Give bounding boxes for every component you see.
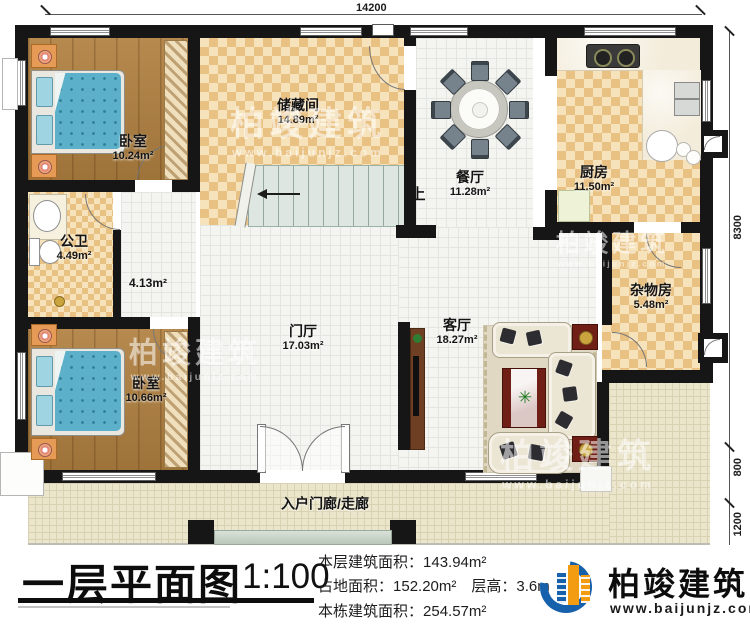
fridge — [558, 190, 590, 222]
right-dimension-label-1200: 1200 — [732, 512, 744, 536]
room-area: 11.28m² — [450, 186, 490, 199]
bathroom-sink — [33, 200, 61, 232]
room-label-foyer: 门厅 17.03m² — [283, 323, 324, 353]
porch-step — [214, 530, 392, 545]
sofa-cushion — [555, 359, 573, 377]
table-plant: ✳ — [516, 389, 534, 407]
title-block: 一层平面图 1:100 本层建筑面积：143.94m² 占地面积：152.20m… — [0, 545, 750, 633]
gas-stove — [586, 44, 640, 68]
room-area: 10.66m² — [126, 392, 167, 405]
window — [584, 27, 676, 36]
table-medallion — [579, 331, 593, 345]
wall — [113, 230, 121, 317]
sofa-cushion — [499, 441, 518, 460]
window — [300, 27, 362, 36]
room-label-bedroom1: 卧室 10.24m² — [113, 133, 154, 163]
logo-swoosh — [530, 551, 602, 623]
room-label-kitchen: 厨房 11.50m² — [574, 164, 614, 194]
wall — [545, 38, 557, 76]
brand-name: 柏竣建筑 — [608, 559, 748, 605]
vent-box — [372, 24, 394, 36]
room-label-storage: 储藏间 14.89m² — [277, 97, 319, 127]
room-name: 储藏间 — [277, 97, 319, 114]
burner — [594, 49, 612, 67]
round-basin — [646, 130, 678, 162]
area-stats: 本层建筑面积：143.94m² 占地面积：152.20m² 层高：3.6m 本栋… — [318, 551, 550, 624]
room-area: 11.50m² — [574, 181, 614, 194]
brand-website: www.baijunjz.com — [610, 600, 750, 616]
bed — [31, 348, 125, 436]
room-label-living: 客厅 18.27m² — [437, 317, 478, 347]
bed-sheet-fold — [55, 73, 81, 149]
small-bowl — [686, 150, 701, 165]
room-label-dining: 餐厅 11.28m² — [450, 169, 490, 199]
door-step — [580, 466, 612, 492]
room-label-utility: 杂物房 5.48m² — [630, 282, 672, 312]
plan-scale: 1:100 — [242, 557, 330, 597]
wall — [602, 370, 713, 383]
wall — [188, 317, 200, 483]
sofa-cushion — [554, 410, 573, 429]
room-label-bedroom2: 卧室 10.66m² — [126, 375, 167, 405]
title-underline-thin — [18, 606, 230, 608]
stat-value: 152.20m² — [393, 578, 456, 595]
nightstand — [31, 44, 57, 68]
bed-pillow — [36, 395, 53, 426]
stat-floor-area: 本层建筑面积：143.94m² — [318, 551, 550, 575]
sofa-cushion — [526, 330, 543, 347]
kitchen-sink — [674, 99, 700, 116]
nightstand — [31, 324, 57, 346]
room-label-corridor: 4.13m² — [129, 276, 167, 290]
window — [17, 60, 26, 106]
brand-logo-icon — [540, 557, 602, 621]
room-area: 5.48m² — [630, 299, 672, 312]
logo-building-bar — [557, 573, 566, 603]
wall — [396, 225, 436, 238]
room-label-porch: 入户门廊/走廊 — [281, 496, 369, 513]
coffee-table: ✳ — [502, 368, 546, 428]
window — [702, 80, 711, 122]
room-name: 厨房 — [574, 164, 614, 181]
room-area: 4.49m² — [57, 250, 92, 263]
dining-chair — [471, 139, 489, 159]
nightstand — [31, 438, 57, 460]
wardrobe — [164, 331, 188, 468]
wall — [404, 90, 416, 228]
bed — [31, 70, 125, 154]
stat-label: 层高： — [471, 578, 516, 595]
wall — [398, 322, 410, 450]
window-sill-box — [2, 58, 18, 110]
sofa-bottom — [488, 432, 570, 474]
top-dimension-label: 14200 — [352, 2, 391, 14]
sofa-right — [548, 352, 596, 440]
top-dimension-line — [45, 14, 702, 15]
porch-floor-right — [609, 382, 710, 543]
floor-plan-page: 14200 8300 800 1200 上 — [0, 0, 750, 633]
porch-pillar — [390, 520, 416, 544]
wall — [602, 233, 612, 325]
room-name: 客厅 — [437, 317, 478, 334]
plant-on-cabinet — [413, 334, 422, 343]
dining-chair — [471, 61, 489, 81]
sofa-cushion — [499, 327, 516, 344]
bed-pillow — [36, 356, 53, 387]
window — [702, 248, 711, 304]
stat-label: 本层建筑面积： — [318, 554, 423, 571]
stat-value: 143.94m² — [423, 554, 486, 571]
table-medallion — [579, 443, 593, 457]
room-name: 卧室 — [113, 133, 154, 150]
dining-chair — [509, 101, 529, 119]
nightstand — [31, 154, 57, 178]
kitchen-sink — [674, 82, 700, 99]
end-table — [572, 324, 598, 350]
stat-label: 占地面积： — [318, 578, 393, 595]
room-name: 卧室 — [126, 375, 167, 392]
dining-chair — [431, 101, 451, 119]
room-name: 门厅 — [283, 323, 324, 340]
floor-drain — [54, 296, 65, 307]
room-name: 入户门廊/走廊 — [281, 496, 369, 513]
stat-total-area: 本栋建筑面积：254.57m² — [318, 600, 550, 624]
stairs-direction-arrow — [266, 193, 300, 195]
right-dimension-label-800: 800 — [732, 458, 744, 476]
logo-building-bar — [568, 565, 579, 605]
right-dimension-label-8300: 8300 — [732, 215, 744, 239]
room-area: 17.03m² — [283, 340, 324, 353]
dining-table-center — [472, 102, 488, 118]
window — [50, 27, 110, 36]
room-area: 18.27m² — [437, 334, 478, 347]
sofa-cushion — [562, 386, 578, 402]
stat-footprint-height: 占地面积：152.20m² 层高：3.6m — [318, 575, 550, 599]
wall — [15, 180, 135, 192]
wall — [211, 470, 260, 483]
sofa-cushion — [528, 444, 545, 461]
porch-pillar — [188, 520, 214, 544]
stat-label: 本栋建筑面积： — [318, 603, 423, 620]
tv — [413, 356, 419, 416]
logo-building-bar — [581, 575, 590, 603]
window — [17, 352, 26, 420]
window — [62, 472, 156, 481]
bed-sheet-fold — [55, 351, 81, 431]
wall — [545, 222, 634, 233]
wardrobe — [164, 40, 188, 180]
wall — [700, 25, 713, 382]
window — [410, 27, 468, 36]
wall — [188, 38, 200, 192]
room-name: 杂物房 — [630, 282, 672, 299]
wall — [404, 38, 416, 46]
right-dimension-line — [729, 31, 730, 558]
stat-value: 254.57m² — [423, 603, 486, 620]
corridor-floor — [121, 192, 196, 317]
title-underline — [18, 598, 314, 603]
stat-spacer — [456, 578, 471, 595]
stairs-arrowhead — [257, 189, 267, 199]
room-area: 4.13m² — [129, 276, 167, 290]
end-table — [572, 436, 598, 462]
staircase — [248, 165, 404, 227]
room-area: 14.89m² — [277, 114, 319, 127]
room-area: 10.24m² — [113, 150, 154, 163]
wall — [681, 222, 713, 233]
burner — [617, 49, 635, 67]
room-name: 餐厅 — [450, 169, 490, 186]
room-name: 公卫 — [57, 233, 92, 250]
bed-pillow — [36, 77, 53, 107]
bed-pillow — [36, 115, 53, 145]
room-label-bathroom: 公卫 4.49m² — [57, 233, 92, 263]
